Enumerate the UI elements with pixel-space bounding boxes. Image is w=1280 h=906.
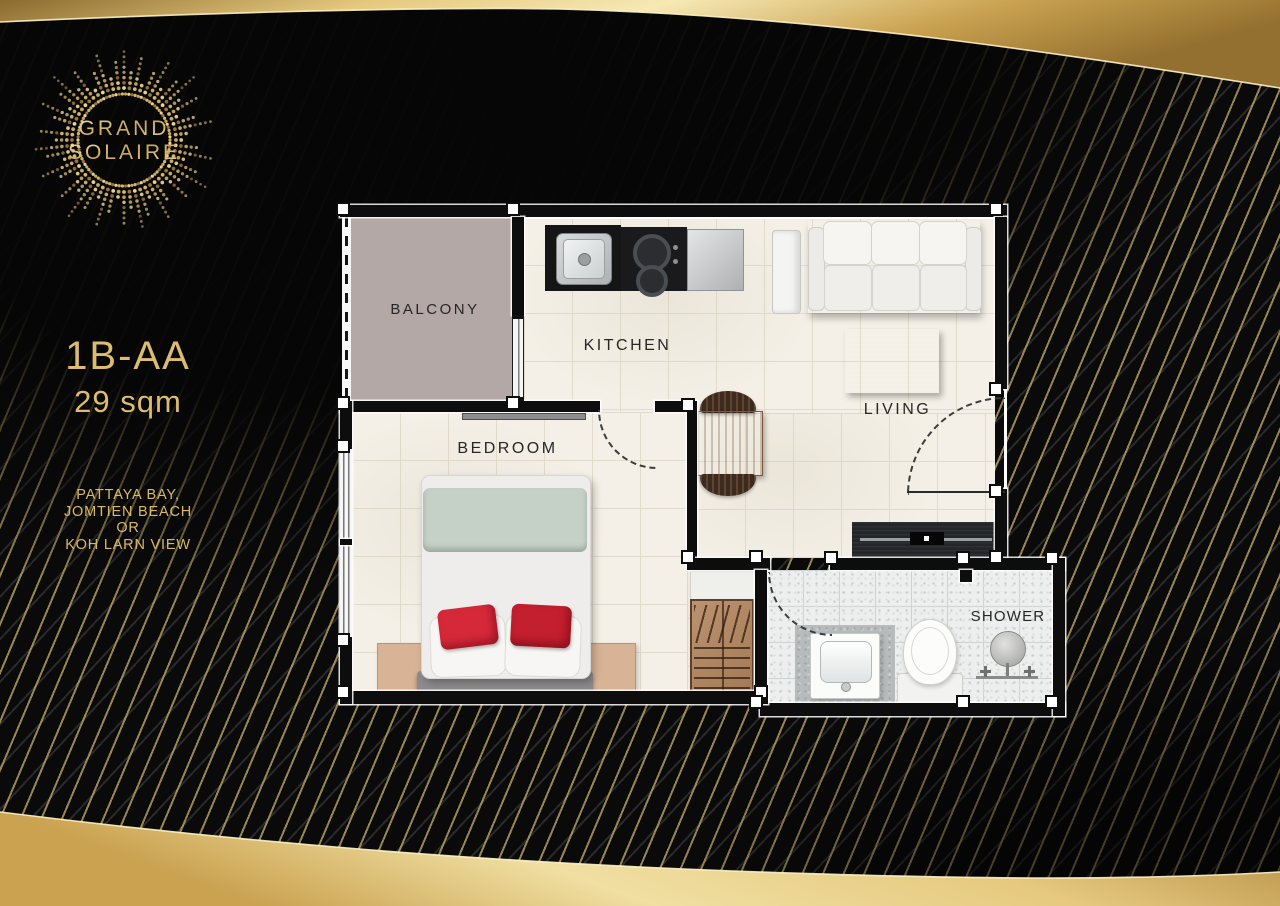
wall-post bbox=[336, 202, 350, 216]
brand-name-line2: SOLAIRE bbox=[68, 141, 180, 164]
wall-bedroom-bottom bbox=[340, 691, 768, 704]
room-label-balcony: BALCONY bbox=[365, 301, 505, 318]
wall-post bbox=[506, 396, 520, 410]
wall-post bbox=[989, 484, 1003, 498]
hob-knob bbox=[673, 245, 678, 250]
wall-post bbox=[1045, 695, 1059, 709]
shower-handle bbox=[1024, 666, 1035, 677]
coffee-table bbox=[845, 329, 939, 393]
wall-bedroom-partition bbox=[340, 401, 600, 412]
wall-post bbox=[989, 550, 1003, 564]
room-label-shower: SHOWER bbox=[952, 608, 1064, 625]
shower-head bbox=[990, 631, 1026, 667]
view-description: PATTAYA BAY, JOMTIEN BEACH OR KOH LARN V… bbox=[28, 487, 228, 553]
wall-inner-line bbox=[524, 217, 995, 219]
sofa-back-cushion bbox=[871, 221, 920, 265]
wall-post bbox=[336, 396, 350, 410]
poster: GRAND SOLAIRE 1B-AA 29 sqm PATTAYA BAY, … bbox=[0, 0, 1280, 906]
wall-bathroom-bottom bbox=[760, 703, 1065, 716]
kitchen-counter-sink-unit bbox=[545, 225, 621, 291]
wall-post bbox=[749, 550, 763, 564]
unit-code: 1B-AA bbox=[38, 334, 218, 379]
wall-balcony-partition bbox=[512, 217, 524, 315]
wall-top bbox=[340, 205, 1007, 217]
handle-bar bbox=[1028, 666, 1031, 677]
wall-hall bbox=[687, 401, 697, 563]
wall-shower-stub bbox=[960, 570, 972, 582]
bed-duvet-fold bbox=[423, 488, 587, 552]
wall-post bbox=[749, 695, 763, 709]
wall-post bbox=[989, 382, 1003, 396]
view-line: JOMTIEN BEACH bbox=[28, 504, 228, 521]
wall-bathroom-right bbox=[1053, 558, 1065, 716]
sofa-back-cushion bbox=[823, 221, 872, 265]
wardrobe bbox=[690, 599, 754, 698]
sofa-arm-right bbox=[965, 227, 982, 311]
dining-table bbox=[696, 411, 763, 476]
wall-post bbox=[681, 550, 695, 564]
burner-small bbox=[636, 265, 668, 297]
wall-post bbox=[506, 202, 520, 216]
kitchen-sink bbox=[556, 233, 612, 285]
logo-sunburst-dots bbox=[34, 50, 212, 230]
kitchen-cabinet bbox=[687, 229, 744, 291]
tv-console bbox=[852, 522, 1000, 558]
wall-post bbox=[1045, 551, 1059, 565]
cabinet bbox=[690, 571, 756, 601]
sofa bbox=[808, 221, 980, 313]
sofa-back-cushion bbox=[919, 221, 967, 265]
view-line: PATTAYA BAY, bbox=[28, 487, 228, 504]
bedroom-window-mullion bbox=[340, 539, 352, 545]
washbasin-bowl bbox=[820, 641, 872, 683]
refrigerator bbox=[772, 230, 801, 314]
handle-bar bbox=[984, 666, 987, 677]
red-cushion bbox=[510, 603, 572, 648]
sofa-seat-cushion bbox=[824, 265, 872, 311]
wall-wardrobe-bathroom bbox=[755, 570, 767, 703]
room-label-bedroom: BEDROOM bbox=[435, 440, 580, 458]
tv-media-box bbox=[910, 532, 944, 545]
unit-area: 29 sqm bbox=[38, 384, 218, 420]
red-cushion bbox=[437, 604, 499, 651]
wall-post bbox=[336, 439, 350, 453]
wardrobe-shelves bbox=[694, 647, 750, 693]
wall-post bbox=[989, 202, 1003, 216]
wall-post bbox=[956, 695, 970, 709]
brand-logo: GRAND SOLAIRE bbox=[34, 50, 214, 230]
stove-hob bbox=[621, 227, 687, 291]
curtain-track bbox=[462, 413, 586, 420]
hob-knob bbox=[673, 259, 678, 264]
shower-handle bbox=[980, 666, 991, 677]
toilet-seat bbox=[911, 627, 949, 675]
wall-post bbox=[681, 398, 695, 412]
toilet-bowl bbox=[903, 619, 957, 685]
wall-bathroom-top-right bbox=[830, 558, 1065, 570]
wall-post bbox=[956, 551, 970, 565]
wall-living-right-upper bbox=[995, 217, 1007, 389]
washbasin bbox=[810, 633, 880, 699]
wall-post bbox=[824, 551, 838, 565]
balcony-sliding-glass-door bbox=[512, 315, 524, 401]
sofa-seat-cushion bbox=[920, 265, 967, 311]
view-line: OR bbox=[28, 520, 228, 537]
washbasin-tap bbox=[841, 682, 851, 692]
balcony-railing bbox=[342, 217, 351, 401]
wardrobe-hangers bbox=[694, 605, 750, 643]
brand-name-line1: GRAND bbox=[79, 117, 170, 140]
wall-post bbox=[336, 685, 350, 699]
room-label-living: LIVING bbox=[825, 401, 970, 419]
sofa-seat-cushion bbox=[872, 265, 920, 311]
tv-led bbox=[924, 536, 929, 541]
room-label-kitchen: KITCHEN bbox=[555, 337, 700, 355]
sink-drain bbox=[578, 253, 591, 266]
sink-basin bbox=[563, 239, 605, 279]
wall-post bbox=[336, 633, 350, 647]
floor-plan: BALCONY KITCHEN LIVING BEDROOM SHOWER bbox=[340, 205, 1065, 730]
view-line: KOH LARN VIEW bbox=[28, 537, 228, 554]
